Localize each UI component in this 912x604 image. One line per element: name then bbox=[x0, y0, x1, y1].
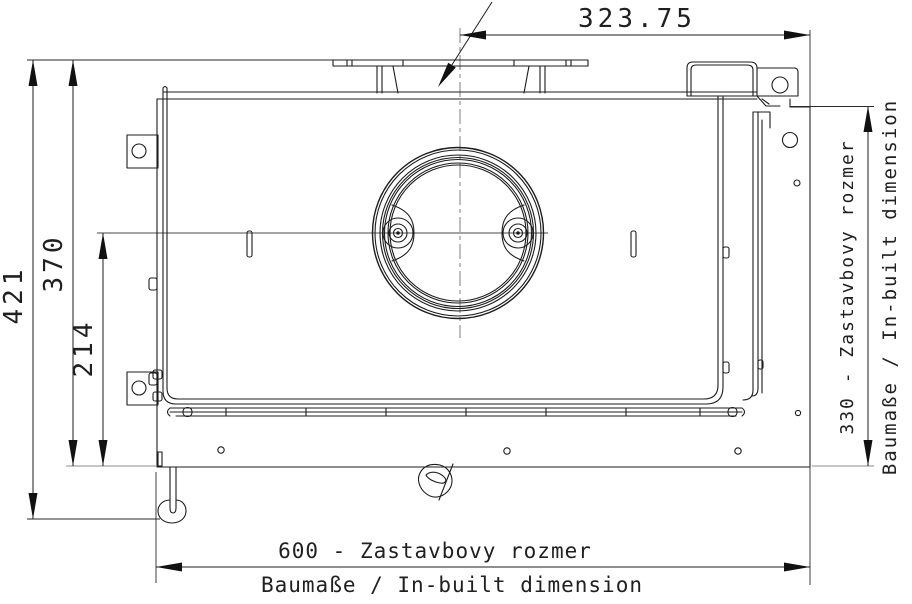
top-right-bracket bbox=[757, 68, 798, 96]
mounting-bracket-top-left bbox=[127, 135, 158, 168]
front-panel-hole bbox=[795, 410, 800, 415]
arrowhead-left bbox=[156, 563, 182, 572]
air-slot-right bbox=[631, 231, 636, 257]
arrowhead-down bbox=[864, 440, 873, 466]
front-panel bbox=[158, 410, 801, 466]
foot-pad bbox=[158, 500, 186, 523]
dimension-bottom-width: 600 - Zastavbovy rozmer Baumaße / In-bui… bbox=[156, 472, 810, 597]
left-wall-clip-upper bbox=[149, 278, 157, 290]
technical-drawing-page: 323.75 421 370 214 330 - bbox=[0, 0, 912, 604]
right-wall-clip-upper bbox=[723, 247, 729, 258]
arrowhead-right bbox=[784, 563, 810, 572]
dimension-body-height-370: 370 bbox=[39, 60, 78, 466]
junction-box-inner bbox=[691, 65, 753, 96]
dimension-right-depth: 330 - Zastavbovy rozmer Baumaße / In-bui… bbox=[790, 99, 901, 475]
front-panel-tab bbox=[158, 452, 162, 466]
arrowhead-down bbox=[29, 493, 38, 519]
bracket-hole bbox=[132, 144, 146, 158]
left-wall-top-cap bbox=[163, 87, 167, 89]
left-boss-center bbox=[396, 231, 400, 235]
firebox bbox=[149, 87, 729, 405]
dimension-label-bottom-line2: Baumaße / In-built dimension bbox=[261, 573, 643, 597]
dimension-label-right-line1: 330 - Zastavbovy rozmer bbox=[837, 139, 858, 434]
dimension-label-bottom-line1: 600 - Zastavbovy rozmer bbox=[278, 539, 592, 563]
dimension-label-right-line2: Baumaße / In-built dimension bbox=[879, 99, 901, 475]
technical-drawing-canvas: 323.75 421 370 214 330 - bbox=[0, 0, 912, 604]
dimension-total-height-421: 421 bbox=[0, 60, 38, 519]
bracket-hole bbox=[132, 381, 146, 395]
arrowhead-down bbox=[69, 440, 78, 466]
right-panel-hole-small bbox=[794, 180, 800, 186]
front-panel-hole bbox=[218, 447, 224, 453]
air-slot-left bbox=[247, 231, 252, 257]
arrowhead-right bbox=[784, 31, 810, 40]
adjustable-foot bbox=[158, 467, 186, 523]
handle-slot bbox=[426, 472, 446, 483]
dimension-label-214: 214 bbox=[69, 319, 99, 378]
right-panel-hole-large bbox=[783, 133, 798, 148]
arrowhead-up bbox=[69, 60, 78, 86]
base-plate bbox=[157, 92, 810, 467]
handle-edge bbox=[439, 464, 453, 500]
bottom-rail bbox=[168, 408, 745, 417]
arrowhead-down bbox=[99, 440, 108, 466]
firebox-wall-inner bbox=[167, 88, 718, 399]
top-plate-supports bbox=[377, 66, 545, 93]
front-panel-hole bbox=[735, 448, 741, 454]
top-right-bracket-hole bbox=[772, 77, 788, 93]
right-trim-panel bbox=[743, 112, 800, 400]
arrowhead-up bbox=[864, 106, 873, 132]
smoke-outlet-leader bbox=[438, 2, 492, 87]
door-handle bbox=[418, 464, 453, 500]
arrowhead-up bbox=[29, 60, 38, 86]
foot-stem-tip bbox=[170, 500, 176, 513]
right-boss-center bbox=[516, 231, 520, 235]
right-wall-clip-lower bbox=[723, 362, 729, 373]
corner-fold-detail bbox=[757, 96, 780, 106]
junction-box-outer bbox=[687, 62, 757, 96]
dimension-label-370: 370 bbox=[39, 234, 69, 293]
rail-lines bbox=[168, 408, 745, 416]
foot-stem bbox=[170, 467, 176, 500]
front-panel-hole bbox=[504, 448, 510, 454]
arrowhead-up bbox=[99, 233, 108, 259]
centerlines bbox=[97, 28, 548, 338]
dimension-label-top-width: 323.75 bbox=[578, 4, 696, 34]
right-trim-lines bbox=[743, 112, 770, 400]
dimension-center-height-214: 214 bbox=[69, 233, 108, 466]
dimension-label-421: 421 bbox=[0, 266, 29, 325]
top-plate-ticks bbox=[347, 60, 571, 66]
